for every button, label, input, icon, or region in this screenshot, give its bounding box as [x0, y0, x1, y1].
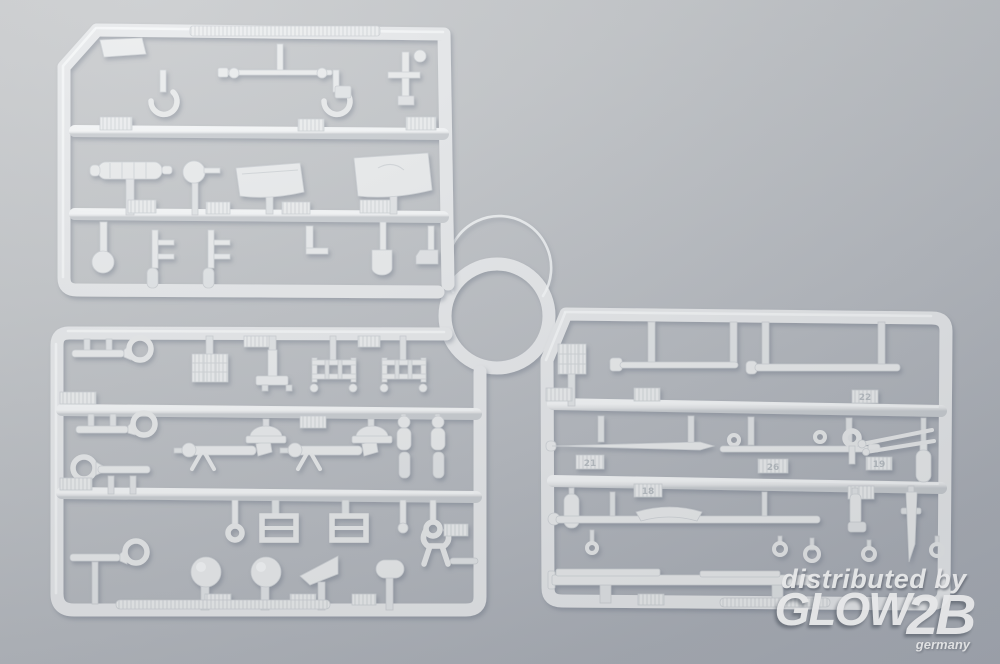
part-number-tag	[60, 478, 92, 490]
part-number-tag	[546, 388, 572, 401]
part-number-tag	[298, 119, 324, 131]
part-corner-plate	[100, 38, 146, 57]
part-number-tag-26: 26	[758, 459, 788, 473]
sprue-right: 22 21 26 19	[546, 312, 946, 607]
part-pin	[398, 500, 408, 533]
part-eyelet-pin-1	[228, 500, 242, 540]
molded-text-strip	[720, 598, 830, 607]
part-shovel	[372, 222, 392, 275]
sprue-top-left	[63, 26, 448, 292]
part-boot-shape	[416, 226, 438, 264]
part-small-eyelets	[587, 530, 943, 561]
part-number-tag	[60, 392, 96, 404]
molded-text-strip	[116, 600, 330, 609]
part-cleaning-rod	[546, 416, 714, 451]
svg-text:19: 19	[873, 460, 886, 470]
part-number-tag	[638, 594, 664, 605]
part-machine-gun-2	[280, 440, 378, 469]
part-number-tag	[406, 117, 436, 130]
part-rod-assembly	[218, 44, 351, 98]
part-tow-cable-4	[70, 541, 147, 604]
part-dome-2	[352, 419, 392, 443]
part-thin-rod	[610, 322, 738, 371]
part-ball-pin	[92, 222, 114, 273]
part-number-tag	[444, 524, 468, 536]
part-number-tag	[244, 336, 270, 347]
product-photo: 22 21 26 19	[0, 0, 1000, 664]
part-number-tag	[358, 336, 380, 347]
svg-text:22: 22	[859, 393, 872, 403]
part-cylinder	[203, 268, 214, 288]
molded-text-strip	[190, 26, 380, 36]
part-number-tag-21: 21	[576, 455, 604, 469]
part-bracket-2	[208, 230, 230, 268]
sprue-photo-svg: 22 21 26 19	[0, 0, 1000, 664]
part-tow-hook-1	[151, 70, 177, 114]
part-number-tag	[634, 388, 660, 401]
sprue-bottom-left	[56, 331, 480, 610]
part-number-tag	[282, 202, 310, 214]
part-cylinder-pair-2	[431, 414, 445, 478]
svg-text:21: 21	[584, 459, 597, 469]
part-number-tag	[100, 117, 132, 130]
part-number-tag-22: 22	[852, 390, 878, 403]
part-tow-cable-1	[72, 338, 151, 360]
part-gun-barrel	[746, 322, 900, 374]
svg-text:18: 18	[642, 487, 655, 497]
part-dome-1	[246, 419, 286, 443]
part-number-tag-19: 19	[866, 457, 892, 470]
part-number-tag	[360, 200, 390, 213]
part-number-tag	[206, 202, 230, 214]
part-ladder-2	[380, 336, 427, 392]
part-buckle-1	[262, 500, 296, 540]
part-number-tag	[352, 594, 376, 605]
svg-text:26: 26	[767, 463, 780, 473]
part-number-tag-18: 18	[634, 484, 662, 497]
part-number-tag	[300, 416, 326, 428]
circular-cutout-ring	[445, 216, 551, 368]
part-ladder-1	[310, 336, 357, 392]
part-cylinder	[147, 268, 158, 288]
part-angle-bracket	[306, 226, 328, 254]
part-machine-gun-1	[174, 440, 272, 469]
part-fire-extinguisher	[916, 418, 931, 482]
part-bracket-1	[152, 230, 174, 268]
part-stowage-crate	[192, 336, 228, 382]
part-periscope	[388, 50, 426, 105]
part-blade	[901, 486, 921, 562]
part-number-tag	[128, 200, 156, 213]
part-cylinder-pair-1	[397, 414, 411, 478]
part-knob	[376, 560, 404, 610]
part-buckle-2	[332, 500, 366, 540]
